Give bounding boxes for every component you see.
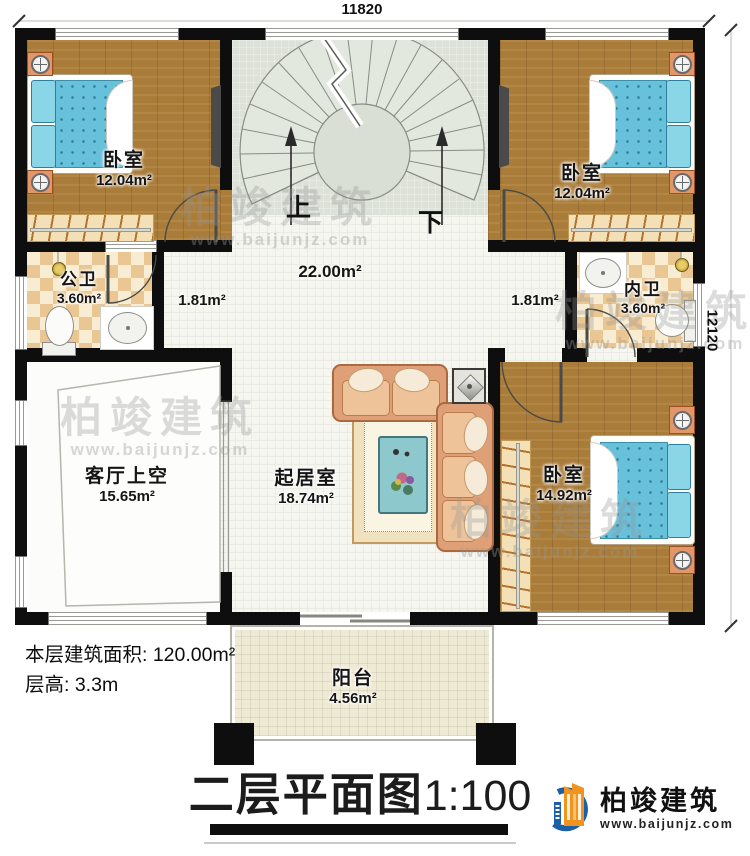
brand-logo: 柏竣建筑 www.baijunjz.com (546, 778, 733, 840)
room-name: 卧室 (64, 150, 184, 172)
corner-table (452, 368, 486, 404)
sofa-top (332, 364, 448, 422)
nightstand (669, 546, 695, 574)
stairs-down-label: 下 (418, 203, 443, 239)
corridor-right-area-label: 1.81m² (485, 292, 585, 309)
wall (220, 572, 232, 612)
corridor-left-area-label: 1.81m² (152, 292, 252, 309)
nightstand (669, 406, 695, 434)
nightstand (669, 52, 695, 76)
window (537, 612, 669, 625)
room-area: 4.56m² (293, 690, 413, 707)
wall (410, 612, 488, 625)
lamp-icon (673, 551, 692, 570)
dimension-width: 11820 (300, 1, 424, 18)
nightstand (27, 52, 53, 76)
room-area: 12.04m² (522, 185, 642, 202)
bed-pillow (666, 80, 691, 123)
floor-info: 本层建筑面积: 120.00m² 层高: 3.3m (25, 640, 235, 700)
floor-height-text: 层高: 3.3m (25, 670, 235, 700)
brand-site: www.baijunjz.com (600, 817, 733, 831)
room-area: 14.92m² (504, 487, 624, 504)
plan-title-text: 二层平面图 (189, 758, 424, 823)
room-name: 阳台 (293, 668, 413, 690)
bed-pillow (667, 444, 691, 490)
lamp-icon (673, 173, 692, 192)
room-name: 卧室 (504, 465, 624, 487)
wall (232, 612, 300, 625)
room-label-living-room: 起居室 18.74m² (236, 468, 376, 507)
room-name: 客厅上空 (57, 466, 197, 488)
window (15, 400, 27, 446)
spiral-stair (232, 40, 488, 232)
room-area: 3.60m² (593, 300, 693, 316)
room-label-bedroom-tl: 卧室 12.04m² (64, 150, 184, 189)
room-area: 18.74m² (236, 490, 376, 507)
tv (211, 85, 221, 168)
bed-pillow (31, 125, 56, 168)
plan-title-scale: 1:100 (424, 772, 532, 821)
window (15, 556, 27, 608)
ceiling-lamp-icon (675, 258, 689, 272)
floor-area-text: 本层建筑面积: 120.00m² (25, 640, 235, 670)
room-name: 起居室 (236, 468, 376, 490)
room-label-balcony: 阳台 4.56m² (293, 668, 413, 707)
brand-name: 柏竣建筑 (600, 787, 733, 817)
coffee-table (378, 436, 428, 514)
bed-pillow (667, 492, 691, 538)
bed-pillow (666, 125, 691, 168)
window (265, 28, 459, 40)
title-underline-thin (204, 842, 516, 844)
bed-blanket (589, 80, 616, 168)
window (545, 28, 669, 40)
room-label-inner-bath: 内卫 3.60m² (593, 280, 693, 316)
wall (488, 348, 505, 362)
room-name: 公卫 (29, 270, 129, 290)
bed-pillow (31, 80, 56, 123)
wall (220, 40, 232, 190)
stairs-up-label: 上 (286, 188, 311, 224)
window (48, 612, 207, 625)
window (15, 276, 27, 350)
bedroom-tl-threshold (220, 190, 232, 242)
room-label-bedroom-br: 卧室 14.92m² (504, 465, 624, 504)
hall-area-label: 22.00m² (270, 262, 390, 282)
wall (562, 348, 587, 362)
tv (499, 85, 509, 168)
room-label-living-void: 客厅上空 15.65m² (57, 466, 197, 505)
bedroom-tr-threshold (488, 190, 500, 242)
lamp-icon (673, 55, 692, 74)
sink-basin (108, 312, 147, 344)
plan-title: 二层平面图 1:100 (160, 758, 560, 823)
sofa-right (436, 402, 494, 552)
lamp-icon (31, 55, 50, 74)
room-name: 内卫 (593, 280, 693, 300)
brand-text: 柏竣建筑 www.baijunjz.com (600, 787, 733, 831)
wardrobe (27, 214, 154, 242)
brand-logo-icon (546, 778, 592, 840)
lamp-icon (673, 411, 692, 430)
room-area: 3.60m² (29, 290, 129, 306)
room-area: 15.65m² (57, 488, 197, 505)
wardrobe (568, 214, 695, 242)
nightstand (669, 170, 695, 194)
dimension-height: 12120 (704, 291, 721, 371)
corner-table-knob (467, 384, 472, 389)
lamp-icon (31, 173, 50, 192)
room-area: 12.04m² (64, 172, 184, 189)
wall (220, 362, 232, 402)
room-label-bedroom-tr: 卧室 12.04m² (522, 163, 642, 202)
nightstand (27, 170, 53, 194)
wall (155, 240, 232, 252)
window (55, 28, 179, 40)
room-name: 卧室 (522, 163, 642, 185)
title-underline (210, 824, 508, 835)
wall (488, 40, 500, 190)
toilet-bowl (45, 306, 74, 346)
wall (637, 348, 705, 362)
room-label-public-bath: 公卫 3.60m² (29, 270, 129, 306)
floorplan-page: 柏竣建筑 www.baijunjz.com 柏竣建筑 www.baijunjz.… (0, 0, 750, 856)
